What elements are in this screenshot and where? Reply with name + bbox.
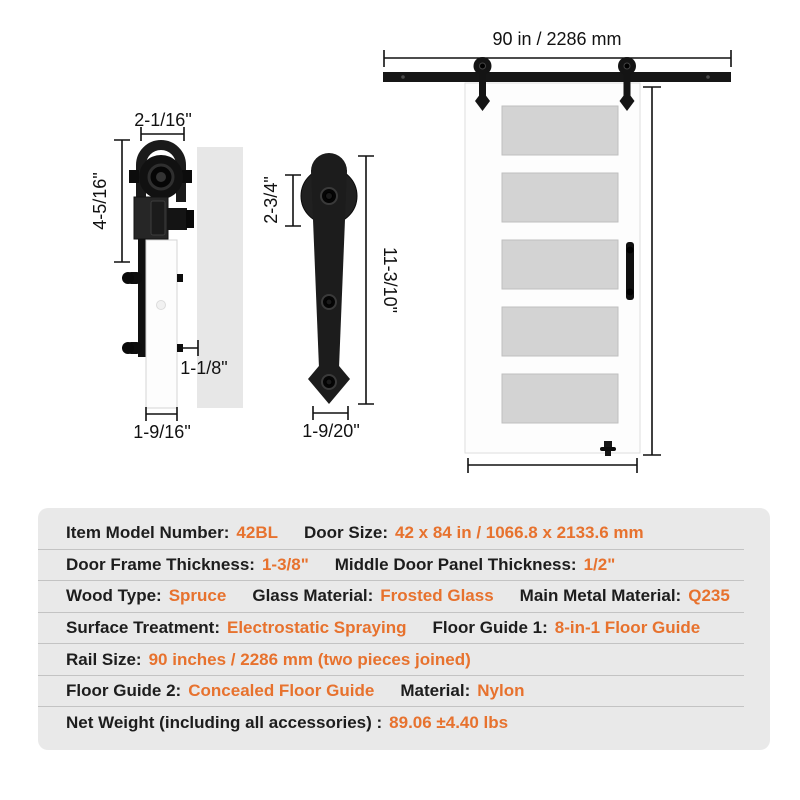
dim-hanger-length: 11-3/10" bbox=[358, 156, 400, 404]
spec-row: Net Weight (including all accessories) :… bbox=[38, 706, 744, 738]
spec-pair: Door Frame Thickness: 1-3/8" bbox=[66, 555, 309, 575]
glass-panel bbox=[502, 106, 618, 155]
spec-row: Door Frame Thickness: 1-3/8" Middle Door… bbox=[38, 549, 744, 581]
glass-panel bbox=[502, 307, 618, 356]
spec-pair: Glass Material: Frosted Glass bbox=[252, 586, 493, 606]
dim-wheel-diameter: 2-3/4" bbox=[261, 175, 301, 226]
spec-pair: Surface Treatment: Electrostatic Sprayin… bbox=[66, 618, 407, 638]
dim-strap-width: 2-1/16" bbox=[134, 110, 191, 141]
rail-screw-right bbox=[706, 75, 710, 79]
glass-panel bbox=[502, 173, 618, 222]
spec-value: 90 inches / 2286 mm (two pieces joined) bbox=[149, 650, 471, 670]
spec-pair: Material: Nylon bbox=[400, 681, 524, 701]
rail-screw-left bbox=[401, 75, 405, 79]
spec-pair: Rail Size: 90 inches / 2286 mm (two piec… bbox=[66, 650, 471, 670]
spec-label: Item Model Number: bbox=[66, 523, 229, 543]
hanger-front-view-diagram: 2-3/4" 11-3/10" 1-9/20" bbox=[261, 153, 400, 441]
glass-panel bbox=[502, 374, 618, 423]
spec-row: Floor Guide 2: Concealed Floor Guide Mat… bbox=[38, 675, 744, 707]
spec-label: Door Frame Thickness: bbox=[66, 555, 255, 575]
dim-strap-width-label: 2-1/16" bbox=[134, 110, 191, 130]
spec-pair: Door Size: 42 x 84 in / 1066.8 x 2133.6 … bbox=[304, 523, 644, 543]
dim-wheel-diameter-label: 2-3/4" bbox=[261, 176, 281, 223]
roller-wheel-hub bbox=[156, 172, 166, 182]
spec-label: Door Size: bbox=[304, 523, 388, 543]
spec-row: Item Model Number: 42BL Door Size: 42 x … bbox=[38, 518, 744, 549]
spec-label: Main Metal Material: bbox=[520, 586, 682, 606]
axle-nut-right bbox=[182, 170, 192, 183]
spec-value: 89.06 ±4.40 lbs bbox=[389, 713, 508, 733]
product-spec-image: 2-1/16" 4-5/16" 1-1/8" 1-9/16" bbox=[0, 0, 800, 800]
spec-row: Surface Treatment: Electrostatic Sprayin… bbox=[38, 612, 744, 644]
spec-pair: Floor Guide 2: Concealed Floor Guide bbox=[66, 681, 374, 701]
spec-table: Item Model Number: 42BL Door Size: 42 x … bbox=[38, 508, 770, 750]
spec-row: Wood Type: Spruce Glass Material: Froste… bbox=[38, 580, 744, 612]
spec-value: Electrostatic Spraying bbox=[227, 618, 407, 638]
sliding-rail bbox=[383, 72, 731, 82]
dim-rail-length-label: 90 in / 2286 mm bbox=[492, 29, 621, 49]
spec-pair: Middle Door Panel Thickness: 1/2" bbox=[335, 555, 616, 575]
spec-label: Floor Guide 1: bbox=[433, 618, 548, 638]
dim-assembly-height-label: 4-5/16" bbox=[90, 172, 110, 229]
spec-pair: Net Weight (including all accessories) :… bbox=[66, 713, 508, 733]
spec-value: Concealed Floor Guide bbox=[188, 681, 374, 701]
spec-value: 1-3/8" bbox=[262, 555, 309, 575]
board-hole bbox=[157, 301, 166, 310]
spec-value: 42BL bbox=[236, 523, 278, 543]
spec-value: 1/2" bbox=[584, 555, 616, 575]
spec-label: Rail Size: bbox=[66, 650, 142, 670]
door-edge-board bbox=[146, 240, 177, 408]
frosted-glass-panels bbox=[502, 106, 618, 423]
spec-value: Nylon bbox=[477, 681, 524, 701]
dim-door-height bbox=[643, 87, 661, 455]
dim-hanger-length-label: 11-3/10" bbox=[380, 247, 400, 313]
spec-label: Material: bbox=[400, 681, 470, 701]
spec-value: Spruce bbox=[169, 586, 227, 606]
roller-side-view-diagram: 2-1/16" 4-5/16" 1-1/8" 1-9/16" bbox=[90, 110, 243, 442]
spec-value: 42 x 84 in / 1066.8 x 2133.6 mm bbox=[395, 523, 644, 543]
spec-label: Surface Treatment: bbox=[66, 618, 220, 638]
dim-rail-length: 90 in / 2286 mm bbox=[384, 29, 731, 67]
spec-value: Frosted Glass bbox=[380, 586, 493, 606]
spec-label: Wood Type: bbox=[66, 586, 162, 606]
spec-label: Glass Material: bbox=[252, 586, 373, 606]
dim-assembly-height: 4-5/16" bbox=[90, 140, 130, 262]
spec-value: 8-in-1 Floor Guide bbox=[555, 618, 700, 638]
door-assembly-diagram: 90 in / 2286 mm bbox=[383, 29, 731, 473]
dim-hanger-width-label: 1-9/20" bbox=[302, 421, 359, 441]
spec-row: Rail Size: 90 inches / 2286 mm (two piec… bbox=[38, 643, 744, 675]
spec-label: Floor Guide 2: bbox=[66, 681, 181, 701]
axle-cylinder-cap bbox=[186, 210, 194, 228]
dim-door-width bbox=[468, 458, 637, 473]
spec-value: Q235 bbox=[688, 586, 730, 606]
spec-pair: Main Metal Material: Q235 bbox=[520, 586, 730, 606]
spec-pair: Item Model Number: 42BL bbox=[66, 523, 278, 543]
dim-hanger-width: 1-9/20" bbox=[302, 406, 359, 441]
spec-pair: Floor Guide 1: 8-in-1 Floor Guide bbox=[433, 618, 701, 638]
spec-label: Middle Door Panel Thickness: bbox=[335, 555, 577, 575]
axle-nut-left bbox=[129, 170, 139, 183]
glass-panel bbox=[502, 240, 618, 289]
mounting-plate bbox=[151, 201, 165, 235]
hardware-diagrams: 2-1/16" 4-5/16" 1-1/8" 1-9/16" bbox=[0, 0, 800, 510]
spec-label: Net Weight (including all accessories) : bbox=[66, 713, 382, 733]
door-handle bbox=[626, 242, 634, 300]
dim-bolt-protrusion-label: 1-1/8" bbox=[180, 358, 227, 378]
dim-board-thickness: 1-9/16" bbox=[133, 407, 190, 442]
dim-board-thickness-label: 1-9/16" bbox=[133, 422, 190, 442]
spec-pair: Wood Type: Spruce bbox=[66, 586, 226, 606]
axle-cylinder bbox=[167, 208, 187, 230]
